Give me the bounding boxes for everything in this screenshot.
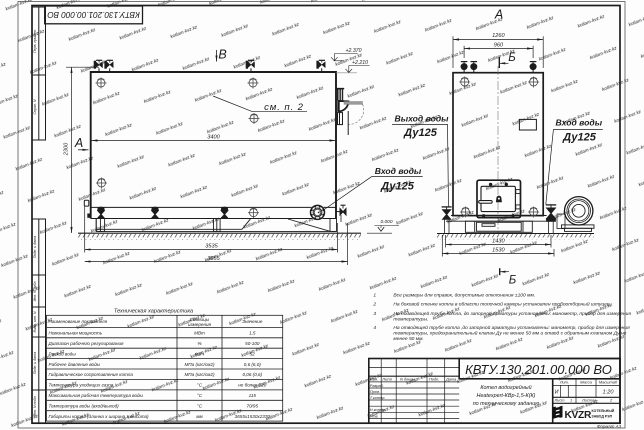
svg-text:КОТЕЛЬНЫЙ: КОТЕЛЬНЫЙ xyxy=(592,409,615,413)
svg-text:Ду125: Ду125 xyxy=(380,181,415,193)
svg-text:не более 220: не более 220 xyxy=(238,383,266,388)
svg-text:Котел водогрейный: Котел водогрейный xyxy=(480,384,531,391)
svg-text:1,5: 1,5 xyxy=(249,331,256,336)
svg-text:70/95: 70/95 xyxy=(247,404,259,409)
svg-text:Инв. N дубл.: Инв. N дубл. xyxy=(33,281,37,302)
svg-text:А: А xyxy=(494,8,503,22)
svg-text:Пров.: Пров. xyxy=(370,389,380,394)
svg-text:КВТУ.130.201.00.000 ВО: КВТУ.130.201.00.000 ВО xyxy=(47,10,140,19)
svg-text:ЗАВОД РЭП: ЗАВОД РЭП xyxy=(592,414,613,418)
svg-text:+2.210: +2.210 xyxy=(352,60,368,66)
svg-text:Формат А3: Формат А3 xyxy=(597,424,622,429)
svg-text:2: 2 xyxy=(372,302,376,308)
svg-text:А: А xyxy=(74,136,83,150)
svg-text:1530: 1530 xyxy=(492,247,505,253)
svg-text:0,6 (6,0): 0,6 (6,0) xyxy=(244,362,262,367)
svg-text:Диапазон рабочего регулировани: Диапазон рабочего регулирования xyxy=(48,341,125,346)
svg-text:Лит.: Лит. xyxy=(559,379,569,384)
svg-text:Наименование показателя: Наименование показателя xyxy=(49,319,108,324)
svg-text:Масштаб: Масштаб xyxy=(599,379,618,384)
svg-text:Расход воды: Расход воды xyxy=(49,351,77,356)
svg-text:Подп. и дата: Подп. и дата xyxy=(33,236,37,259)
svg-text:В: В xyxy=(218,48,226,62)
svg-text:Heatexpert-КВр-1,5-К(К): Heatexpert-КВр-1,5-К(К) xyxy=(477,393,536,399)
svg-text:Вход воды: Вход воды xyxy=(375,166,422,176)
svg-text:Изм.: Изм. xyxy=(370,377,378,382)
svg-text:50-100: 50-100 xyxy=(245,341,260,346)
svg-text:Ду125: Ду125 xyxy=(562,132,597,144)
svg-text:МВт: МВт xyxy=(194,331,205,336)
svg-text:°С: °С xyxy=(197,383,203,388)
svg-text:Номинальная мощность: Номинальная мощность xyxy=(49,331,103,336)
svg-text:Вход воды: Вход воды xyxy=(556,118,603,128)
svg-text:МПа (кгс/см2): МПа (кгс/см2) xyxy=(184,362,214,367)
svg-text:Взам. инв. N: Взам. инв. N xyxy=(33,311,37,332)
svg-text:см. п. 2: см. п. 2 xyxy=(264,102,304,113)
svg-text:Б: Б xyxy=(509,275,517,287)
svg-text:2300: 2300 xyxy=(64,142,70,156)
svg-text:3: 3 xyxy=(373,311,376,317)
svg-text:+2.370: +2.370 xyxy=(346,48,362,54)
svg-text:%: % xyxy=(197,341,201,346)
svg-text:МПа (кгс/см2): МПа (кгс/см2) xyxy=(184,372,214,377)
svg-text:На отводящей трубе котла ,до з: На отводящей трубе котла ,до запорной ар… xyxy=(393,324,630,331)
svg-text:по техническому заданию: по техническому заданию xyxy=(473,401,540,407)
svg-text:1260: 1260 xyxy=(492,33,505,39)
svg-text:Справ. N: Справ. N xyxy=(33,99,37,114)
svg-text:Лист: Лист xyxy=(381,377,393,382)
svg-text:1430: 1430 xyxy=(492,238,505,244)
svg-text:Утв.: Утв. xyxy=(370,413,379,418)
svg-text:0,06 (0,6): 0,06 (0,6) xyxy=(242,372,262,377)
svg-text:1:20: 1:20 xyxy=(603,390,615,396)
svg-text:3400: 3400 xyxy=(207,134,220,140)
svg-text:4: 4 xyxy=(373,325,376,331)
svg-text:Разраб.: Разраб. xyxy=(370,383,384,388)
svg-text:3655х1530х2370: 3655х1530х2370 xyxy=(235,414,271,419)
svg-text:115: 115 xyxy=(249,393,257,398)
svg-text:Подп. и дата: Подп. и дата xyxy=(33,352,37,375)
svg-text:Ду125: Ду125 xyxy=(403,127,438,139)
svg-text:Техническая характеристика: Техническая характеристика xyxy=(114,309,193,315)
svg-text:Гидравлическое сопротивление к: Гидравлическое сопротивление котла xyxy=(49,372,134,377)
svg-text:Н.контр.: Н.контр. xyxy=(370,407,386,412)
svg-text:N докум.: N докум. xyxy=(400,377,416,382)
svg-text:°С: °С xyxy=(197,404,203,409)
svg-text:Листов: Листов xyxy=(581,398,596,403)
svg-text:КВТУ.130.201.00.000 ВО: КВТУ.130.201.00.000 ВО xyxy=(465,362,612,377)
svg-text:На подводящей трубе котла, до: На подводящей трубе котла, до запорной а… xyxy=(393,310,631,317)
svg-text:Выход воды: Выход воды xyxy=(395,114,450,124)
svg-text:Габариты котла (длинна х ширин: Габариты котла (длинна х ширина х высота… xyxy=(49,414,150,419)
svg-text:Масса: Масса xyxy=(580,379,592,384)
svg-text:Инв. N подл.: Инв. N подл. xyxy=(33,395,37,416)
svg-text:Все размеры для справок, допус: Все размеры для справок, допустимые откл… xyxy=(393,292,535,298)
svg-text:Рабочее давление воды: Рабочее давление воды xyxy=(49,362,101,367)
svg-text:KVZR: KVZR xyxy=(565,410,592,421)
svg-text:Температура уходящих газов: Температура уходящих газов xyxy=(49,383,114,388)
svg-text:Лист: Лист xyxy=(554,398,566,403)
svg-text:52: 52 xyxy=(250,351,256,356)
svg-text:На боковой стенке котла в обла: На боковой стенке котла в области топочн… xyxy=(393,301,611,308)
svg-text:м3/ч: м3/ч xyxy=(195,351,205,356)
svg-text:Значение: Значение xyxy=(242,319,263,324)
svg-text:менее 50 мм.: менее 50 мм. xyxy=(393,336,423,342)
svg-text:измерения: измерения xyxy=(188,322,212,327)
svg-text:Максимальная рабочая температу: Максимальная рабочая температура воды xyxy=(49,393,144,398)
svg-text:960: 960 xyxy=(494,43,504,49)
svg-text:1: 1 xyxy=(373,292,376,298)
svg-text:0.000: 0.000 xyxy=(380,219,392,225)
svg-text:мм: мм xyxy=(196,414,203,419)
svg-text:1: 1 xyxy=(570,398,572,403)
svg-text:Б: Б xyxy=(508,52,516,64)
svg-text:температуры.: температуры. xyxy=(393,318,428,323)
svg-text:И: И xyxy=(555,390,559,396)
svg-text:3655: 3655 xyxy=(207,256,220,262)
svg-text:Дата: Дата xyxy=(445,377,457,382)
svg-text:Температура воды (вход/выход): Температура воды (вход/выход) xyxy=(49,404,120,409)
svg-text:3535: 3535 xyxy=(205,243,218,249)
svg-text:температуры, предохранительный: температуры, предохранительный клапан Ду… xyxy=(393,330,626,337)
svg-text:°С: °С xyxy=(197,393,203,398)
svg-text:Перв. примен.: Перв. примен. xyxy=(33,29,37,53)
svg-text:Подп.: Подп. xyxy=(429,377,439,382)
svg-text:Т.контр.: Т.контр. xyxy=(370,395,386,400)
